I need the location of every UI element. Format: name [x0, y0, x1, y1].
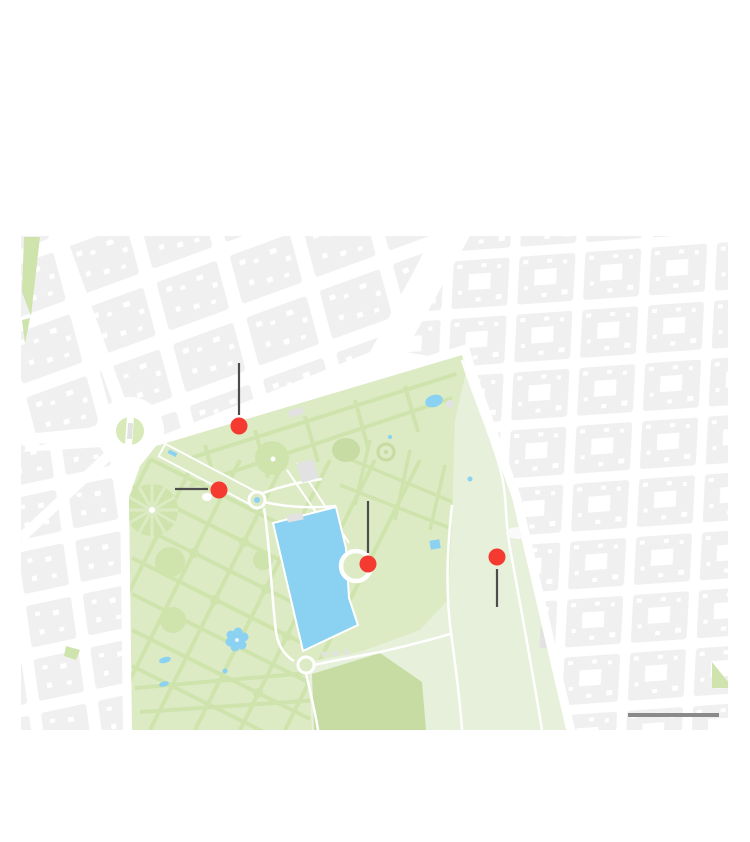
city-park-map: [0, 0, 750, 842]
plaza-circle-south: [298, 657, 314, 673]
tiny-pond-a: [388, 435, 392, 439]
marker-3: [360, 556, 377, 573]
tiny-pond-b: [468, 477, 473, 482]
green-bar-southeast: [736, 695, 750, 703]
radial-parterre: [126, 484, 178, 536]
marker-2: [211, 482, 228, 499]
scale-bar: [628, 713, 719, 717]
marker-1: [231, 418, 248, 435]
small-pond-square: [429, 539, 440, 550]
round-plaza-dot: [271, 457, 276, 462]
small-pond-dot: [223, 669, 228, 674]
garden-ring-dot: [384, 450, 388, 454]
flower-pond-center: [235, 638, 239, 642]
marker-4: [489, 549, 506, 566]
upper-pond-kiosk: [446, 400, 454, 408]
tree-grove: [332, 438, 360, 462]
white-kiosk: [202, 493, 212, 501]
fountain-water: [254, 497, 260, 503]
news-map-figure: [0, 0, 750, 842]
